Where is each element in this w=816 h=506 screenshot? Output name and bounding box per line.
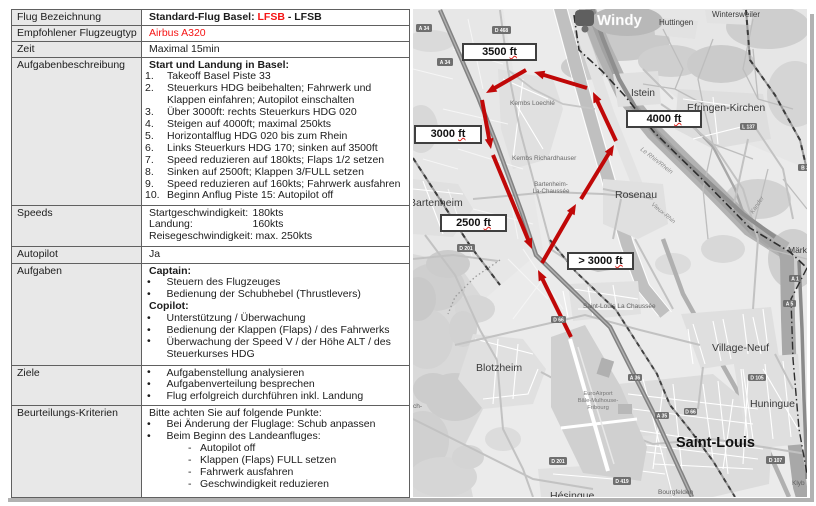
svg-text:D 201: D 201 bbox=[459, 246, 473, 252]
svg-text:D 468: D 468 bbox=[495, 28, 509, 34]
svg-text:D 419: D 419 bbox=[615, 479, 629, 485]
svg-text:Windy: Windy bbox=[597, 12, 643, 29]
svg-text:La-Chaussée: La-Chaussée bbox=[533, 188, 570, 195]
svg-text:Rosenau: Rosenau bbox=[615, 189, 657, 201]
svg-text:Bâle-Mulhouse-: Bâle-Mulhouse- bbox=[578, 398, 619, 404]
svg-text:Huttingen: Huttingen bbox=[659, 18, 693, 27]
svg-text:Istein: Istein bbox=[631, 88, 655, 99]
svg-text:Hésingue: Hésingue bbox=[550, 490, 595, 497]
svg-text:Huningue: Huningue bbox=[750, 398, 795, 410]
svg-text:Kembs Richardhauser: Kembs Richardhauser bbox=[512, 155, 577, 162]
svg-text:D 107: D 107 bbox=[769, 458, 783, 464]
svg-text:D 201: D 201 bbox=[551, 459, 565, 465]
svg-text:Bartenheim-: Bartenheim- bbox=[534, 181, 568, 188]
svg-text:EuroAirport: EuroAirport bbox=[583, 391, 613, 397]
svg-text:D 66: D 66 bbox=[553, 318, 564, 324]
svg-text:L 137: L 137 bbox=[742, 125, 755, 131]
svg-text:Märkt: Märkt bbox=[788, 245, 807, 255]
svg-text:B 3: B 3 bbox=[801, 166, 807, 172]
svg-text:Village-Neuf: Village-Neuf bbox=[712, 342, 769, 354]
svg-text:A 34: A 34 bbox=[419, 26, 430, 32]
svg-text:Wintersweiler: Wintersweiler bbox=[712, 10, 760, 19]
svg-text:Blotzheim: Blotzheim bbox=[476, 362, 522, 374]
svg-text:Kembs Loechlé: Kembs Loechlé bbox=[510, 100, 555, 107]
svg-text:D 105: D 105 bbox=[750, 376, 764, 382]
svg-text:Klyb: Klyb bbox=[792, 480, 805, 487]
svg-text:Saint-Louis: Saint-Louis bbox=[676, 435, 755, 451]
svg-text:D 66: D 66 bbox=[685, 410, 696, 416]
svg-text:Bourgfelden: Bourgfelden bbox=[658, 489, 693, 496]
svg-text:Fribourg: Fribourg bbox=[587, 405, 609, 411]
svg-text:A 5: A 5 bbox=[786, 302, 794, 308]
svg-text:A 34: A 34 bbox=[440, 60, 451, 66]
svg-text:A 35: A 35 bbox=[657, 414, 668, 420]
svg-text:Saint-Louis La Chaussée: Saint-Louis La Chaussée bbox=[583, 303, 656, 310]
svg-text:A 36: A 36 bbox=[630, 376, 641, 382]
svg-text:A 1: A 1 bbox=[791, 277, 799, 283]
svg-text:ch-: ch- bbox=[413, 403, 422, 410]
svg-text:Bartenheim: Bartenheim bbox=[413, 197, 463, 209]
